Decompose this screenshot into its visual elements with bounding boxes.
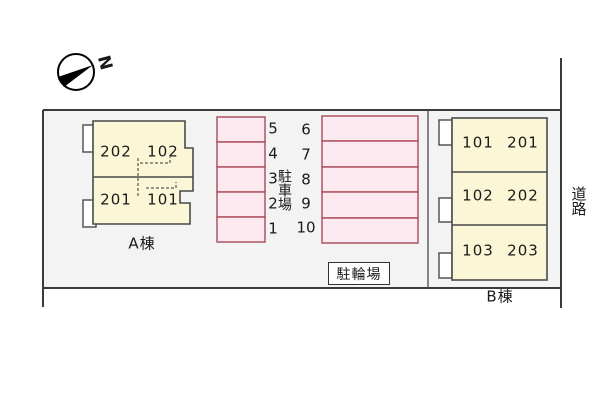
- unit-b-201: 201: [507, 136, 539, 151]
- road-label: 道路: [571, 186, 586, 216]
- building-b-balcony-top: [439, 120, 452, 145]
- unit-b-202: 202: [507, 189, 539, 204]
- unit-b-101: 101: [462, 136, 494, 151]
- parking-number-4: 4: [268, 147, 278, 162]
- parking-number-9: 9: [301, 197, 311, 212]
- building-a-outline: [93, 121, 193, 224]
- unit-b-103: 103: [462, 244, 494, 259]
- site-plan: N 202 102 201 101 A棟 5 4 3 2 1 駐車場 6 7 8…: [0, 0, 600, 400]
- parking-stall-1: [217, 217, 265, 242]
- parking-number-1: 1: [268, 222, 278, 237]
- unit-a-202: 202: [100, 145, 132, 160]
- bicycle-parking-box: 駐輪場: [328, 262, 390, 285]
- parking-number-10: 10: [296, 221, 315, 236]
- parking-stall-9: [322, 192, 418, 218]
- parking-stall-7: [322, 141, 418, 167]
- parking-stall-2: [217, 192, 265, 217]
- bicycle-parking-label: 駐輪場: [337, 264, 382, 284]
- parking-number-7: 7: [301, 148, 311, 163]
- parking-number-8: 8: [301, 173, 311, 188]
- parking-stall-4: [217, 142, 265, 167]
- unit-b-102: 102: [462, 189, 494, 204]
- parking-stall-5: [217, 117, 265, 142]
- parking-number-5: 5: [268, 122, 278, 137]
- building-b-name: B棟: [486, 290, 513, 305]
- building-b-balcony-middle: [439, 198, 452, 222]
- unit-a-201: 201: [100, 193, 132, 208]
- parking-stall-8: [322, 167, 418, 192]
- building-b-balcony-bottom: [439, 253, 452, 278]
- building-a-name: A棟: [128, 237, 155, 252]
- unit-a-101: 101: [147, 193, 179, 208]
- parking-stall-6: [322, 116, 418, 141]
- parking-stall-10: [322, 218, 418, 243]
- parking-stall-3: [217, 167, 265, 192]
- parking-label: 駐車場: [277, 169, 291, 211]
- unit-a-102: 102: [147, 145, 179, 160]
- unit-b-203: 203: [507, 244, 539, 259]
- parking-number-6: 6: [301, 123, 311, 138]
